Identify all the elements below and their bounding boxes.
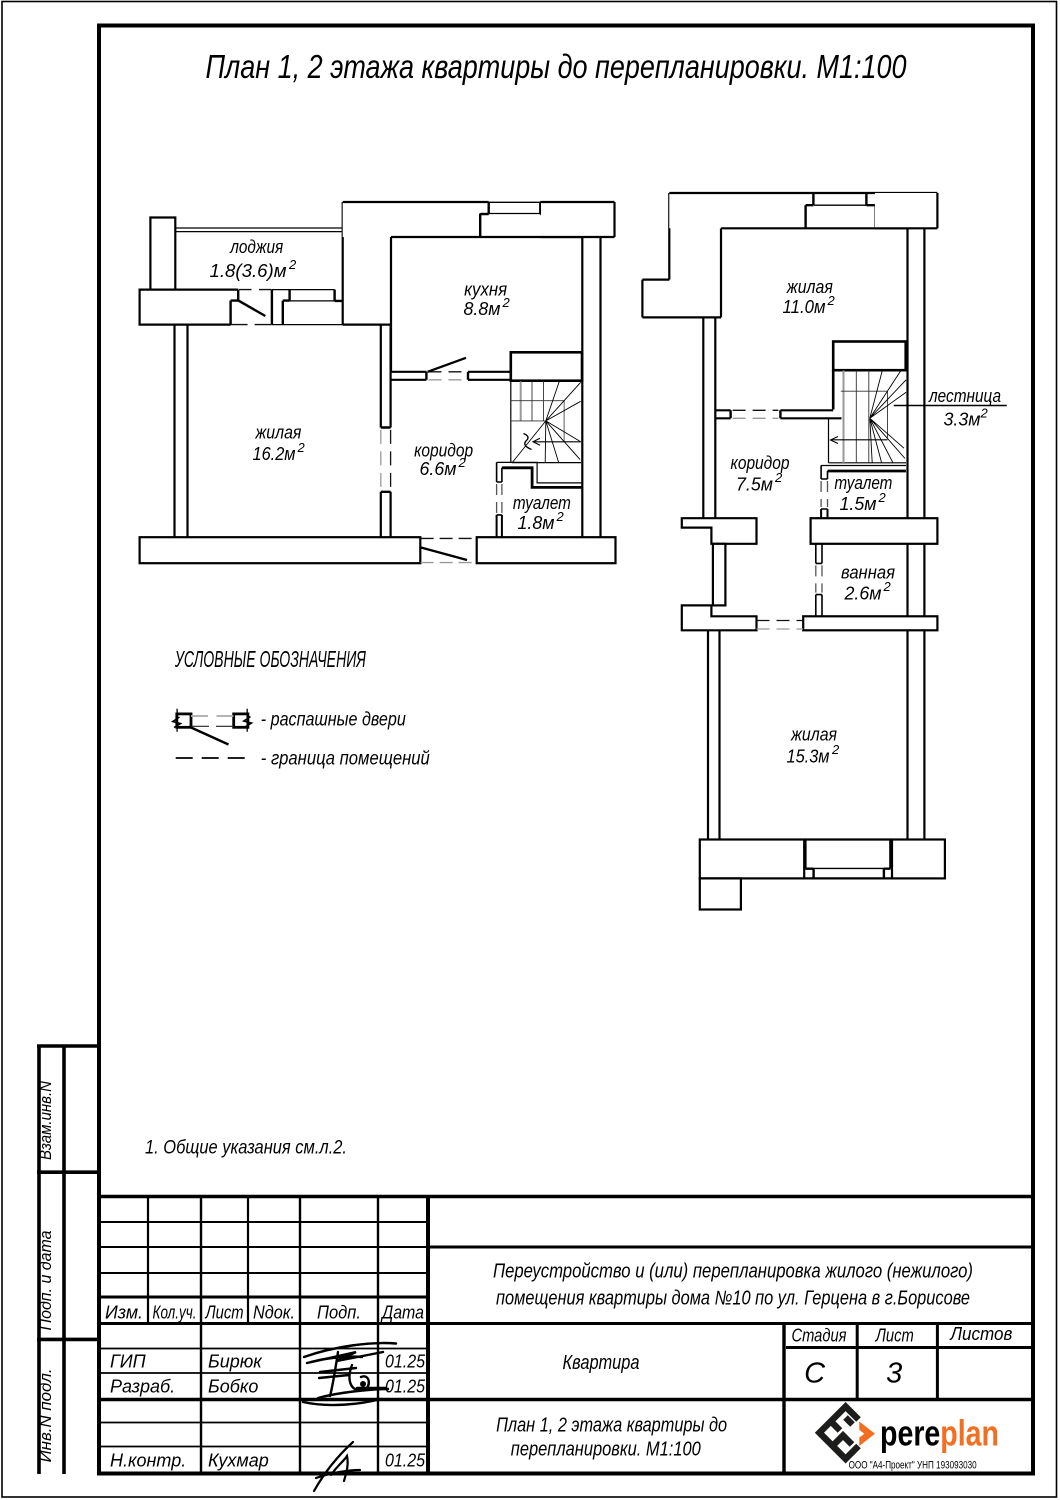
svg-text:15.3м: 15.3м: [787, 747, 830, 767]
svg-text:Переустройство и (или) перепла: Переустройство и (или) перепланировка жи…: [493, 1261, 973, 1283]
svg-text:11.0м: 11.0м: [783, 297, 826, 317]
svg-text:2: 2: [831, 742, 840, 757]
svg-text:1.8(3.6)м: 1.8(3.6)м: [210, 261, 287, 281]
svg-text:Лист: Лист: [875, 1326, 914, 1346]
svg-text:16.2м: 16.2м: [253, 444, 296, 464]
svg-text:жилая: жилая: [255, 423, 302, 443]
svg-text:Стадия: Стадия: [792, 1326, 847, 1346]
svg-text:помещения квартиры дома №10 по: помещения квартиры дома №10 по ул. Герце…: [496, 1288, 970, 1310]
svg-text:2: 2: [883, 579, 892, 594]
svg-text:перепланировки. М1:100: перепланировки. М1:100: [511, 1439, 701, 1461]
svg-text:Подп.: Подп.: [317, 1303, 361, 1323]
svg-text:2: 2: [774, 470, 783, 485]
svg-text:Бирюк: Бирюк: [208, 1352, 263, 1372]
svg-text:2: 2: [288, 257, 297, 272]
svg-text:ГИП: ГИП: [110, 1352, 147, 1372]
svg-text:лоджия: лоджия: [229, 237, 283, 257]
svg-text:Лист: Лист: [205, 1303, 244, 1323]
svg-text:лестница: лестница: [928, 386, 1001, 406]
svg-text:2: 2: [980, 406, 989, 421]
svg-text:План 1, 2 этажа квартиры до пе: План 1, 2 этажа квартиры до перепланиров…: [206, 48, 908, 85]
svg-text:01.25: 01.25: [385, 1451, 426, 1471]
svg-text:1. Общие указания см.л.2.: 1. Общие указания см.л.2.: [145, 1138, 347, 1159]
svg-text:3: 3: [886, 1358, 902, 1390]
svg-text:pereplan: pereplan: [880, 1413, 999, 1454]
svg-text:Инв.N подл.: Инв.N подл.: [36, 1368, 55, 1462]
svg-text:ООО "А4-Проект" УНП 193093030: ООО "А4-Проект" УНП 193093030: [849, 1460, 977, 1472]
svg-text:План 1, 2 этажа квартиры до: План 1, 2 этажа квартиры до: [496, 1415, 727, 1437]
svg-text:8.8м: 8.8м: [464, 299, 501, 319]
svg-text:1.8м: 1.8м: [518, 513, 555, 533]
svg-text:Бобко: Бобко: [208, 1377, 258, 1397]
svg-text:УСЛОВНЫЕ ОБОЗНАЧЕНИЯ: УСЛОВНЫЕ ОБОЗНАЧЕНИЯ: [174, 646, 366, 672]
svg-text:6.6м: 6.6м: [420, 459, 457, 479]
svg-text:2: 2: [878, 490, 887, 505]
svg-text:1.5м: 1.5м: [840, 494, 877, 514]
svg-text:Кухмар: Кухмар: [208, 1451, 269, 1471]
svg-text:Подп. и дата: Подп. и дата: [36, 1231, 55, 1331]
svg-text:Н.контр.: Н.контр.: [110, 1451, 186, 1471]
svg-text:2: 2: [556, 509, 565, 524]
svg-text:- распашные двери: - распашные двери: [261, 710, 406, 731]
svg-text:жилая: жилая: [790, 725, 837, 745]
svg-text:Nдок.: Nдок.: [253, 1303, 295, 1323]
svg-text:2: 2: [458, 455, 467, 470]
svg-text:01.25: 01.25: [385, 1377, 426, 1397]
svg-text:2: 2: [297, 440, 306, 455]
svg-text:жилая: жилая: [786, 277, 833, 297]
svg-text:Изм.: Изм.: [105, 1303, 143, 1323]
svg-text:Дата: Дата: [380, 1303, 424, 1323]
svg-text:- граница помещений: - граница помещений: [261, 749, 430, 770]
svg-text:01.25: 01.25: [385, 1352, 426, 1372]
svg-text:Разраб.: Разраб.: [110, 1377, 175, 1397]
svg-text:3.3м: 3.3м: [944, 410, 981, 430]
svg-text:кухня: кухня: [464, 280, 507, 300]
svg-text:2.6м: 2.6м: [844, 584, 882, 604]
svg-text:С: С: [804, 1358, 826, 1390]
svg-text:2: 2: [502, 295, 511, 310]
svg-text:Листов: Листов: [949, 1324, 1012, 1344]
svg-text:Кол.уч.: Кол.уч.: [153, 1303, 197, 1323]
svg-text:Взам.инв.N: Взам.инв.N: [36, 1080, 55, 1160]
svg-text:Квартира: Квартира: [563, 1352, 640, 1374]
svg-text:2: 2: [827, 293, 836, 308]
svg-text:7.5м: 7.5м: [736, 475, 773, 495]
